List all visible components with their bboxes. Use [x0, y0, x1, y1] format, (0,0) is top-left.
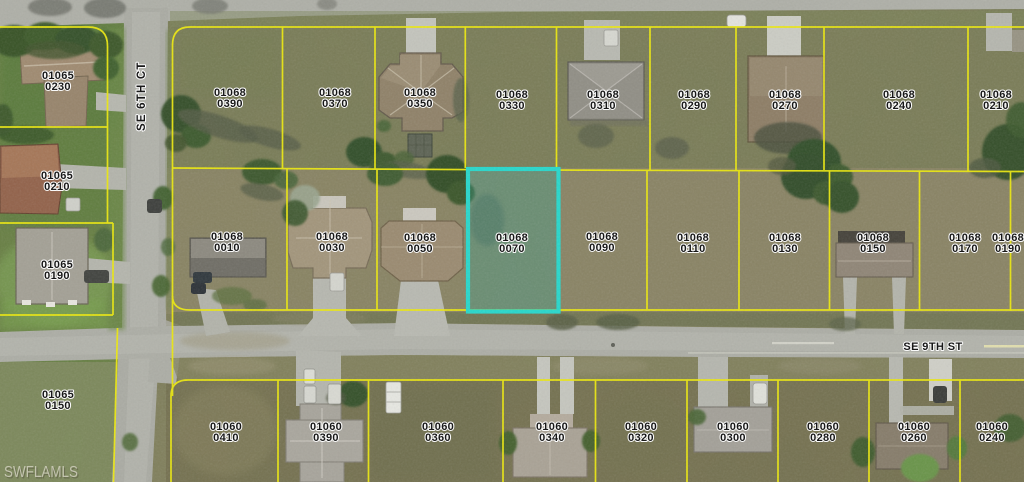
- svg-text:SWFLAMLS: SWFLAMLS: [4, 464, 78, 481]
